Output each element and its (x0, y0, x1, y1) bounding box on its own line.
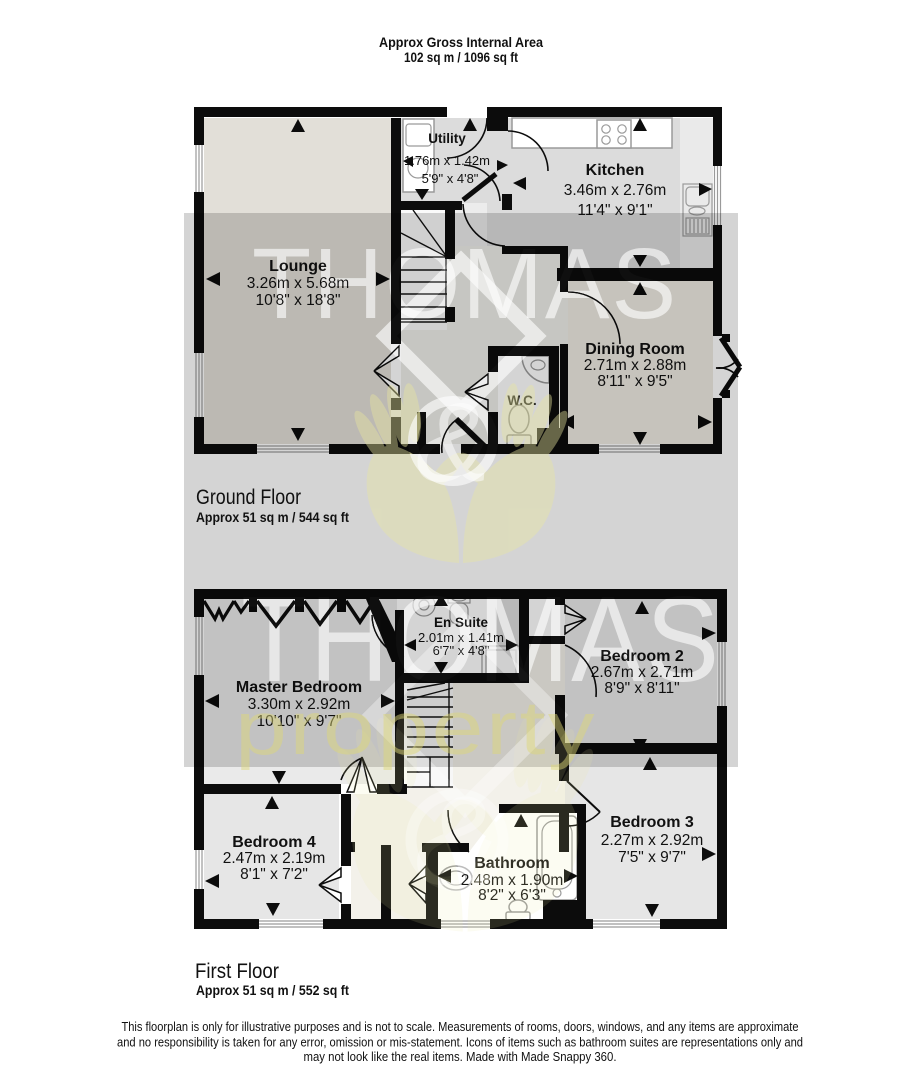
svg-text:Bedroom 3: Bedroom 3 (610, 814, 694, 831)
svg-text:8'1" x 7'2": 8'1" x 7'2" (240, 866, 308, 883)
svg-text:and no responsibility is taken: and no responsibility is taken for any e… (117, 1035, 803, 1050)
svg-text:&: & (415, 770, 499, 911)
svg-text:7'5" x 9'7": 7'5" x 9'7" (618, 849, 686, 866)
svg-text:3.46m x 2.76m: 3.46m x 2.76m (564, 182, 667, 199)
svg-text:property: property (235, 686, 597, 771)
svg-text:2.27m x 2.92m: 2.27m x 2.92m (601, 832, 704, 849)
svg-text:Approx 51 sq m / 544 sq ft: Approx 51 sq m / 544 sq ft (196, 509, 349, 525)
svg-text:Utility: Utility (428, 131, 466, 146)
svg-text:may not look like the real ite: may not look like the real items. Made w… (304, 1049, 617, 1064)
svg-text:THOMAS: THOMAS (252, 228, 678, 340)
svg-text:&: & (416, 380, 491, 505)
svg-text:Bedroom 4: Bedroom 4 (232, 834, 316, 851)
svg-text:Approx Gross Internal Area: Approx Gross Internal Area (379, 34, 543, 50)
svg-text:Ground Floor: Ground Floor (196, 485, 301, 509)
svg-text:1.76m x 1.42m: 1.76m x 1.42m (404, 153, 490, 168)
svg-text:102 sq m / 1096 sq ft: 102 sq m / 1096 sq ft (404, 49, 518, 65)
svg-text:2.47m x 2.19m: 2.47m x 2.19m (223, 850, 326, 867)
svg-text:This floorplan is only for ill: This floorplan is only for illustrative … (122, 1019, 799, 1034)
svg-text:First Floor: First Floor (195, 959, 279, 983)
svg-text:5'9" x 4'8": 5'9" x 4'8" (422, 171, 479, 186)
svg-text:Approx 51 sq m / 552 sq ft: Approx 51 sq m / 552 sq ft (196, 982, 349, 998)
svg-text:Kitchen: Kitchen (586, 162, 645, 179)
